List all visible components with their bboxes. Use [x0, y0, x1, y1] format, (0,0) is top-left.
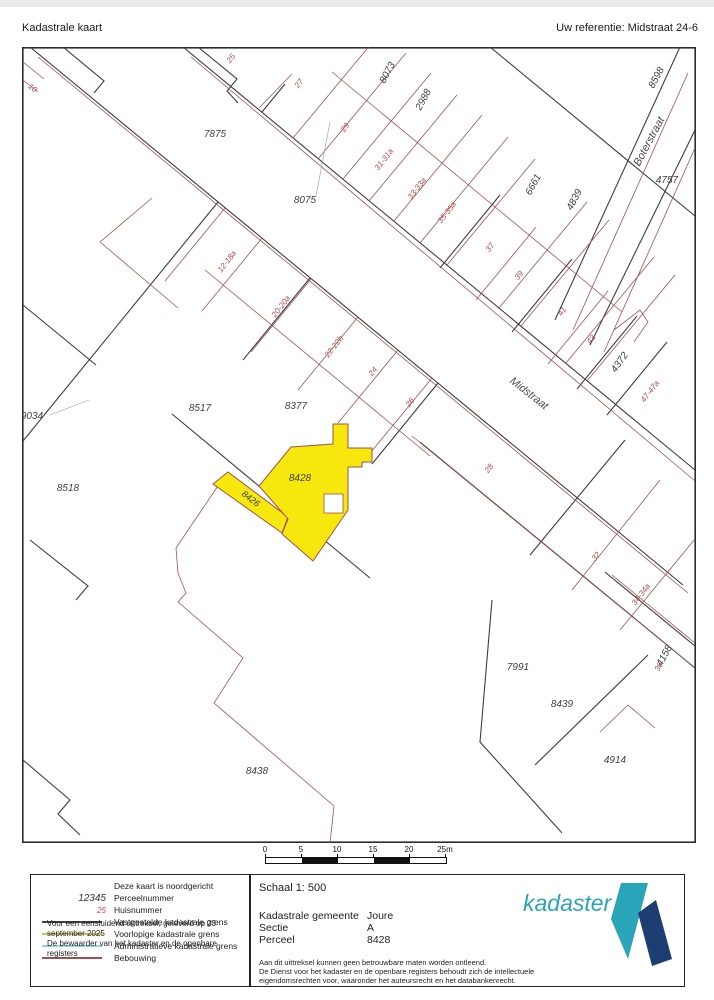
parcel-label-9034: 9034	[22, 411, 44, 422]
legend-label: Perceelnummer	[114, 893, 174, 903]
kadastrale-kaart-page: Kadastrale kaart Uw referentie: Midstraa…	[0, 0, 714, 1000]
building-notch	[324, 494, 343, 513]
field-value: A	[367, 922, 374, 934]
map-info: Schaal 1: 500 Kadastrale gemeenteJoureSe…	[259, 882, 559, 985]
parcel-label-8428: 8428	[289, 473, 312, 484]
issue-line-2: De bewaarder van het kadaster en de open…	[47, 939, 244, 959]
parcel-label-8518: 8518	[57, 483, 80, 494]
disclaimer: Aan dit uittreksel kunnen geen betrouwba…	[259, 958, 559, 985]
scale-bar-segment	[338, 858, 374, 863]
field-row: SectieA	[259, 922, 559, 934]
scale-tick-label: 25m	[437, 845, 453, 854]
field-label: Sectie	[259, 922, 367, 934]
parcel-label-8517: 8517	[189, 403, 212, 414]
disclaimer-line: De Dienst voor het kadaster en de openba…	[259, 967, 559, 976]
cadastral-map[interactable]: 7875807580732988666148398598475743728517…	[22, 47, 696, 843]
north-note: Deze kaart is noordgericht	[114, 880, 244, 892]
field-label: Perceel	[259, 934, 367, 946]
scale-bar-segment	[266, 858, 302, 863]
scale-bar-segment	[302, 858, 338, 863]
scale-tick-label: 10	[333, 845, 342, 854]
parcel-label-8439: 8439	[551, 699, 574, 710]
legend-symbol: 25	[39, 906, 106, 915]
legend-label: Huisnummer	[114, 905, 162, 915]
kadaster-logo: kadaster	[521, 877, 676, 981]
scale-label: Schaal 1: 500	[259, 882, 559, 894]
legend-symbol-text: 12345	[78, 893, 106, 904]
disclaimer-line: eigendomsrechten voor, waaronder het aut…	[259, 976, 559, 985]
kadaster-logo-bar-navy	[638, 900, 672, 966]
scale-tick-label: 20	[405, 845, 414, 854]
page-title: Kadastrale kaart	[22, 22, 102, 34]
parcel-label-8438: 8438	[246, 766, 269, 777]
field-value: Joure	[367, 910, 393, 922]
parcel-fields: Kadastrale gemeenteJoureSectieAPerceel84…	[259, 910, 559, 946]
legend-symbol-text: 25	[97, 906, 106, 915]
legend: Deze kaart is noordgericht 12345Perceeln…	[39, 880, 244, 964]
parcel-label-8377: 8377	[285, 401, 308, 412]
scale-bar-segment	[374, 858, 410, 863]
reference-label: Uw referentie: Midstraat 24-6	[556, 22, 698, 34]
field-row: Kadastrale gemeenteJoure	[259, 910, 559, 922]
issue-note: Voor een eensluidend uittreksel, gelever…	[47, 919, 244, 959]
scale-bar: 0510152025m	[263, 845, 463, 863]
footer-divider	[249, 875, 251, 986]
scale-bar-strip	[265, 857, 447, 864]
legend-symbol: 12345	[39, 893, 106, 904]
disclaimer-line: Aan dit uittreksel kunnen geen betrouwba…	[259, 958, 559, 967]
legend-item: 25Huisnummer	[39, 904, 244, 916]
top-strip	[0, 0, 714, 7]
map-border	[23, 48, 695, 842]
field-row: Perceel8428	[259, 934, 559, 946]
parcel-label-7875: 7875	[204, 129, 227, 140]
parcel-label-8075: 8075	[294, 195, 317, 206]
parcel-label-4757: 4757	[656, 175, 679, 186]
scale-tick-label: 0	[263, 845, 267, 854]
kadaster-logo-text: kadaster	[523, 890, 613, 916]
scale-tick-label: 15	[369, 845, 378, 854]
footer-box: Deze kaart is noordgericht 12345Perceeln…	[30, 874, 685, 987]
issue-line-1: Voor een eensluidend uittreksel, gelever…	[47, 919, 244, 939]
legend-item: 12345Perceelnummer	[39, 892, 244, 904]
field-label: Kadastrale gemeente	[259, 910, 367, 922]
parcel-label-7991: 7991	[507, 662, 529, 673]
parcel-label-4914: 4914	[604, 755, 627, 766]
scale-tick-label: 5	[299, 845, 303, 854]
scale-bar-segment	[410, 858, 446, 863]
field-value: 8428	[367, 934, 390, 946]
